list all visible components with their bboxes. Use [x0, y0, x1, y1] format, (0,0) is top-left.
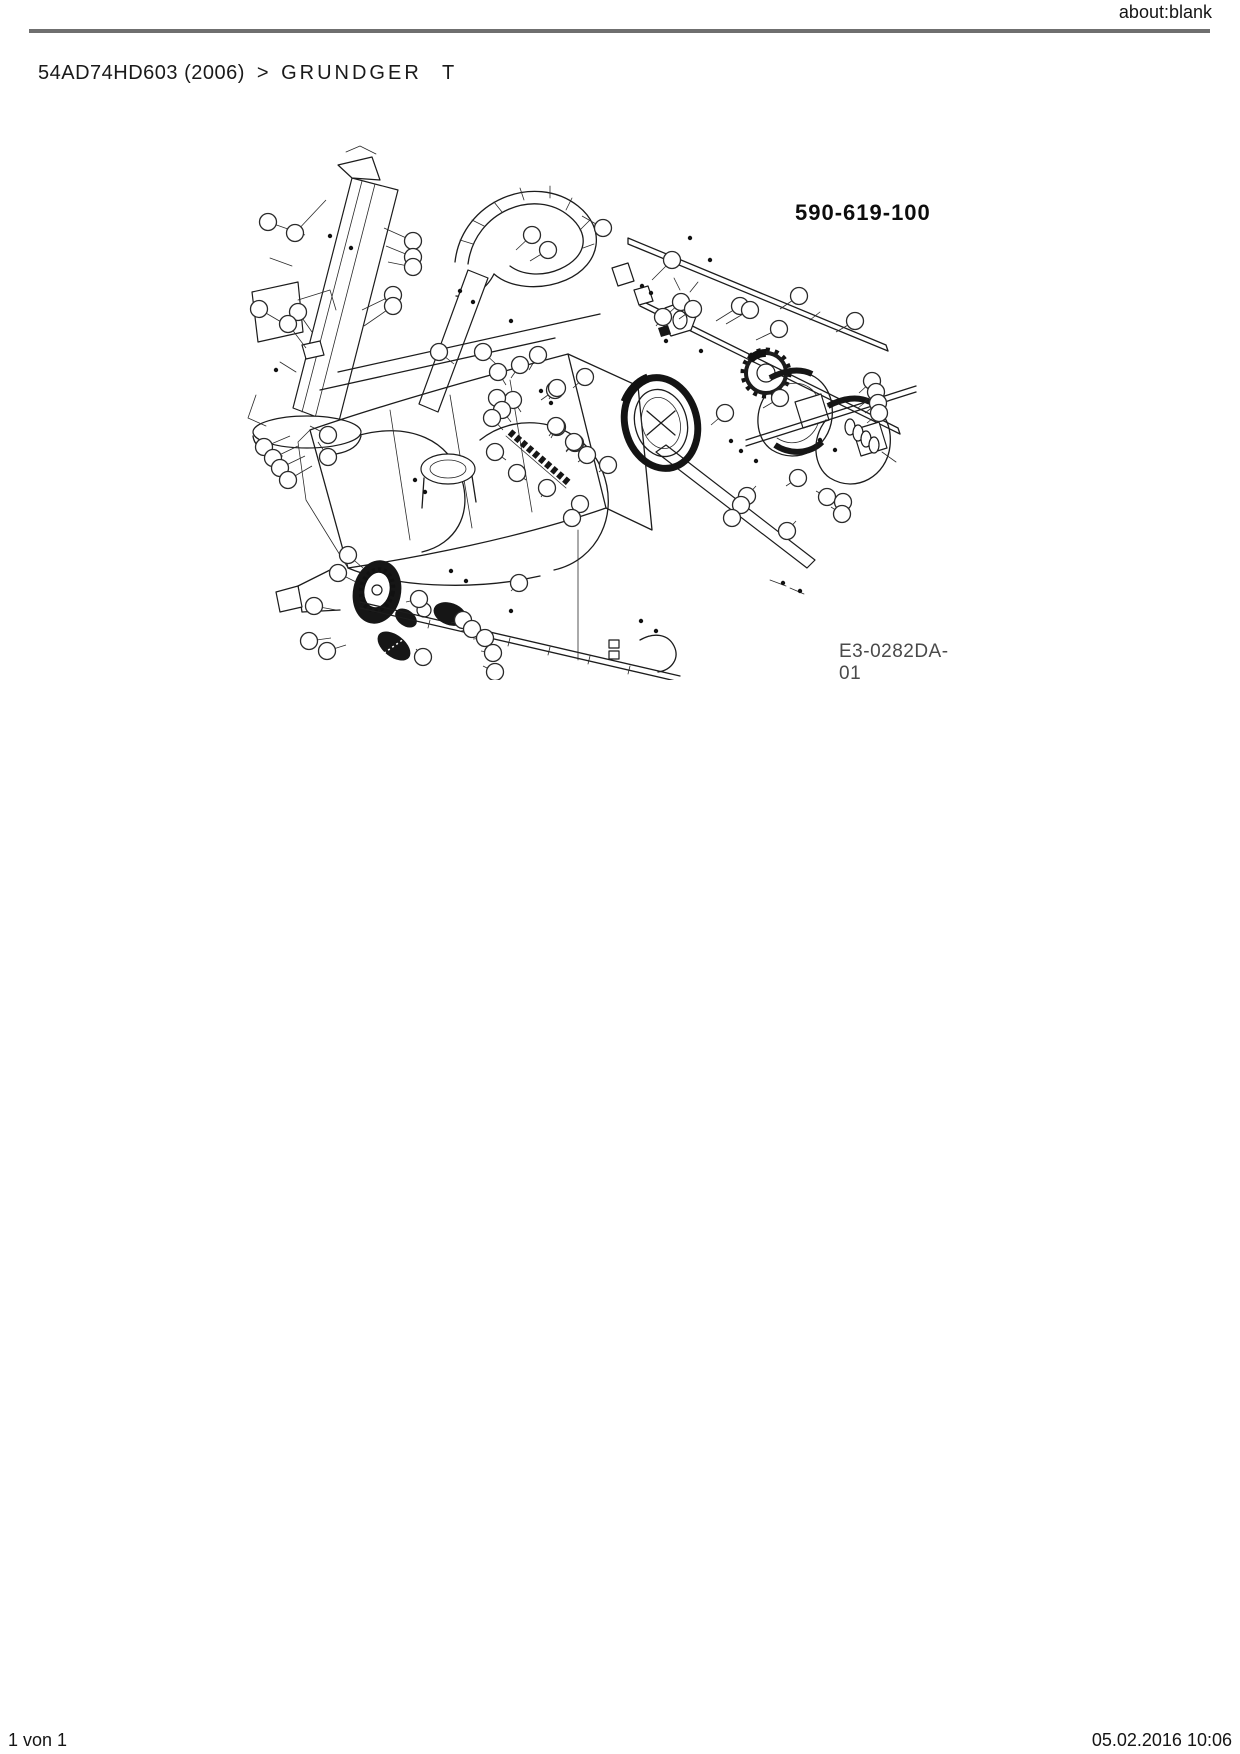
bolt-dot: [688, 236, 692, 240]
part-callout: [871, 405, 888, 422]
bolt-dot: [649, 291, 653, 295]
part-callout: [490, 364, 507, 381]
bolt-dot: [754, 459, 758, 463]
part-callout: [487, 444, 504, 461]
parts-diagram: 590-619-100 E3-0282DA-01: [210, 140, 950, 680]
impeller-pulley: [614, 369, 707, 477]
bolt-dot: [664, 339, 668, 343]
part-callout: [405, 233, 422, 250]
breadcrumb-model: 54AD74HD603 (2006): [38, 62, 245, 84]
part-callout: [819, 489, 836, 506]
footer-page-info: 1 von 1: [8, 1730, 67, 1751]
part-number-label: 590-619-100: [795, 200, 931, 226]
part-callout: [319, 643, 336, 660]
part-callout: [791, 288, 808, 305]
bolt-dot: [699, 349, 703, 353]
bolt-dot: [833, 448, 837, 452]
bolt-dot: [818, 438, 822, 442]
header-rule: [29, 29, 1210, 33]
drawing-number-label: E3-0282DA-01: [839, 641, 950, 685]
footer-timestamp: 05.02.2016 10:06: [1092, 1730, 1232, 1751]
part-callout: [431, 344, 448, 361]
part-callout: [320, 449, 337, 466]
part-callout: [280, 472, 297, 489]
bolt-dot: [798, 589, 802, 593]
part-callout: [487, 664, 504, 681]
bolt-dot: [458, 289, 462, 293]
part-callout: [301, 633, 318, 650]
bolt-dot: [423, 490, 427, 494]
bolt-dot: [539, 389, 543, 393]
part-callout: [664, 252, 681, 269]
bolt-dot: [739, 449, 743, 453]
part-callout: [306, 598, 323, 615]
part-callout: [717, 405, 734, 422]
gearbox: [276, 556, 431, 667]
part-callout: [847, 313, 864, 330]
bolt-dot: [708, 258, 712, 262]
bolt-dot: [509, 609, 513, 613]
breadcrumb: 54AD74HD603 (2006)>GRUNDGER T: [38, 62, 457, 85]
part-callout: [485, 645, 502, 662]
part-callout: [511, 575, 528, 592]
part-callout: [834, 506, 851, 523]
part-callout: [539, 480, 556, 497]
part-callout: [790, 470, 807, 487]
part-callout: [655, 309, 672, 326]
breadcrumb-section: GRUNDGER T: [281, 62, 457, 84]
part-callout: [530, 347, 547, 364]
part-callout: [411, 591, 428, 608]
part-callout: [385, 298, 402, 315]
part-callout: [477, 630, 494, 647]
chute-assembly: [248, 146, 398, 456]
part-callout: [405, 259, 422, 276]
bolt-dot: [349, 246, 353, 250]
bolt-dot: [781, 581, 785, 585]
bolt-dot: [328, 234, 332, 238]
part-callout: [415, 649, 432, 666]
bolt-dot: [509, 319, 513, 323]
printed-page: about:blank 54AD74HD603 (2006)>GRUNDGER …: [0, 0, 1240, 1754]
bolt-dot: [640, 284, 644, 288]
part-callout: [320, 427, 337, 444]
part-callout: [579, 447, 596, 464]
part-callout: [771, 321, 788, 338]
part-callout: [685, 301, 702, 318]
breadcrumb-separator: >: [257, 62, 269, 84]
part-callout: [251, 301, 268, 318]
bolt-dot: [274, 368, 278, 372]
header-url: about:blank: [1119, 2, 1212, 23]
bolt-dot: [413, 478, 417, 482]
part-callout: [340, 547, 357, 564]
bolt-dot: [654, 629, 658, 633]
part-callout: [779, 523, 796, 540]
part-callout: [595, 220, 612, 237]
part-callout: [330, 565, 347, 582]
part-callout: [742, 302, 759, 319]
bolt-dot: [471, 300, 475, 304]
part-callout: [280, 316, 297, 333]
part-callout: [540, 242, 557, 259]
part-callout: [724, 510, 741, 527]
part-callout: [287, 225, 304, 242]
bolt-dot: [639, 619, 643, 623]
part-callout: [484, 410, 501, 427]
part-callout: [564, 510, 581, 527]
part-callout: [772, 390, 789, 407]
bolt-dot: [449, 569, 453, 573]
bolt-dot: [464, 579, 468, 583]
part-callout: [524, 227, 541, 244]
part-callout: [512, 357, 529, 374]
auger-spirals: [746, 371, 916, 484]
part-callout: [566, 434, 583, 451]
bolt-dot: [729, 439, 733, 443]
part-callout: [475, 344, 492, 361]
part-callout: [549, 380, 566, 397]
part-callout: [260, 214, 277, 231]
part-callout: [600, 457, 617, 474]
part-callout: [577, 369, 594, 386]
part-callout: [509, 465, 526, 482]
bolt-dot: [549, 401, 553, 405]
part-callout: [548, 418, 565, 435]
